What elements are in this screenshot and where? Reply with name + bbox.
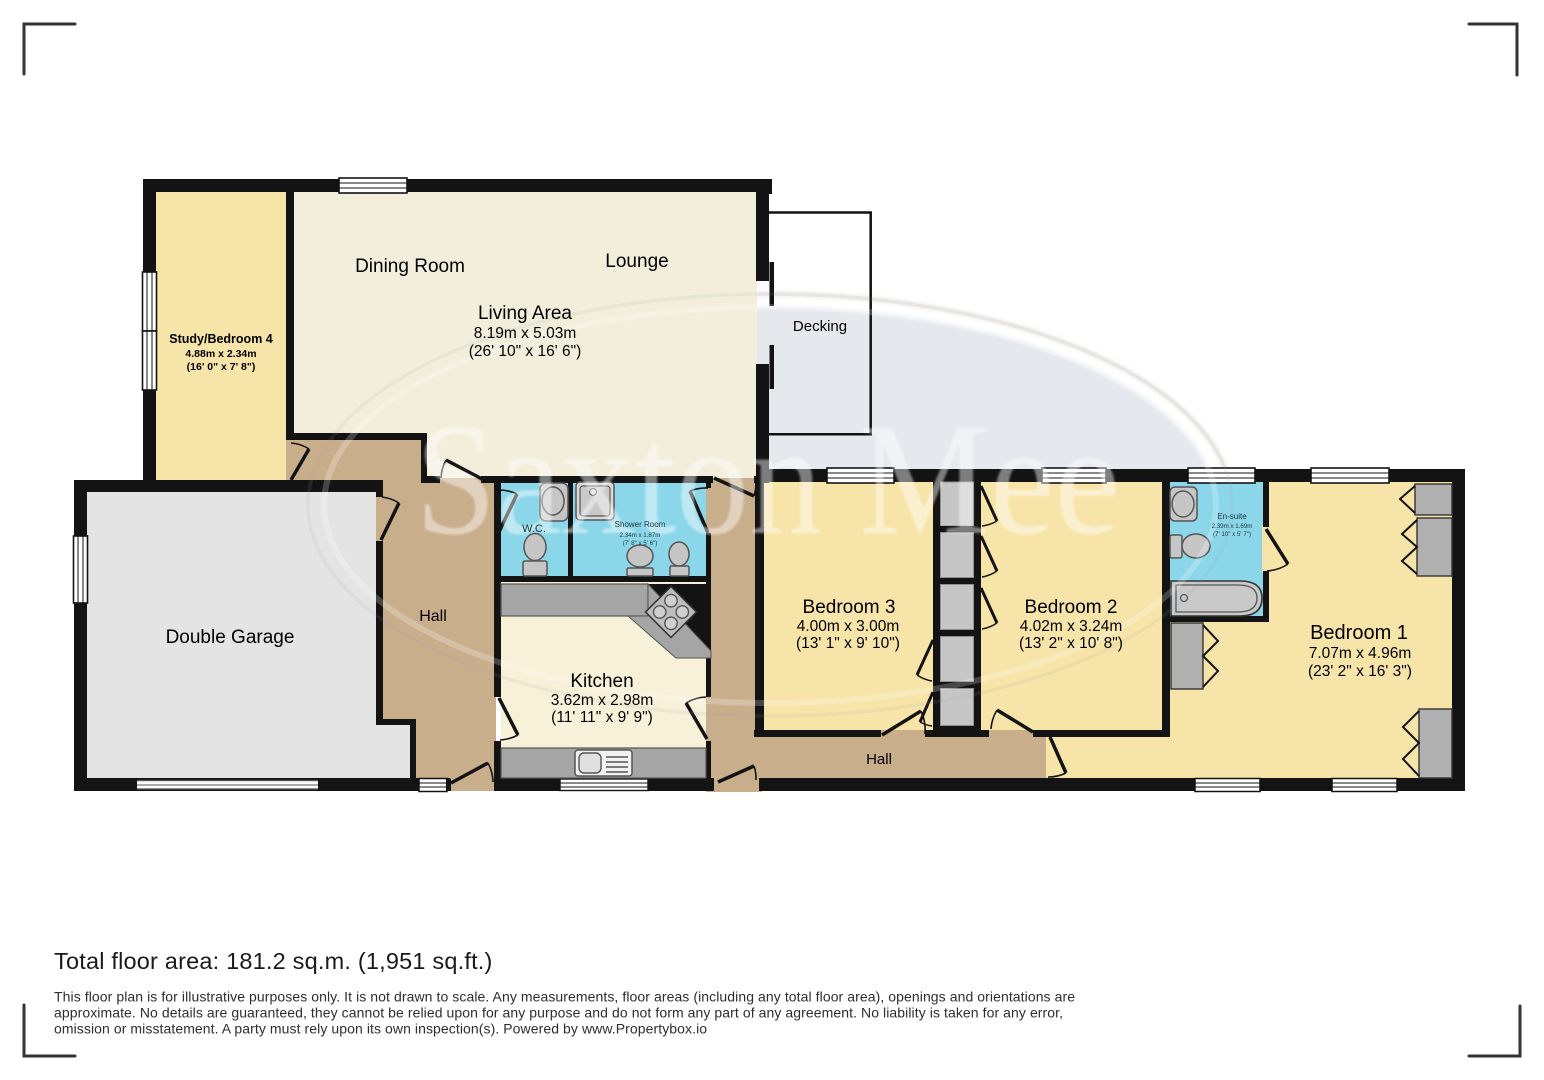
svg-text:Hall: Hall: [866, 751, 892, 768]
svg-text:(11' 11" x 9' 9"): (11' 11" x 9' 9"): [551, 709, 653, 726]
svg-text:Study/Bedroom 4: Study/Bedroom 4: [169, 332, 273, 346]
svg-text:2.39m x 1.69m: 2.39m x 1.69m: [1212, 523, 1253, 530]
svg-text:(26' 10" x 16' 6"): (26' 10" x 16' 6"): [469, 343, 582, 360]
svg-text:(13' 1" x 9' 10"): (13' 1" x 9' 10"): [796, 635, 900, 652]
svg-text:omission or misstatement. A pa: omission or misstatement. A party must r…: [54, 1021, 707, 1037]
svg-text:4.00m x 3.00m: 4.00m x 3.00m: [797, 618, 900, 635]
svg-text:3.62m x 2.98m: 3.62m x 2.98m: [551, 692, 654, 709]
svg-text:Bedroom 1: Bedroom 1: [1310, 622, 1408, 644]
svg-text:4.02m x 3.24m: 4.02m x 3.24m: [1020, 618, 1123, 635]
svg-text:(7' 10" x 5' 7"): (7' 10" x 5' 7"): [1213, 531, 1251, 538]
svg-text:Total floor area: 181.2 sq.m.: Total floor area: 181.2 sq.m. (1,951 sq.…: [54, 948, 493, 974]
svg-text:Double Garage: Double Garage: [166, 627, 295, 648]
svg-text:(13' 2" x 10' 8"): (13' 2" x 10' 8"): [1019, 635, 1123, 652]
svg-text:approximate. No details are gu: approximate. No details are guaranteed, …: [54, 1005, 1063, 1021]
svg-text:Shower Room: Shower Room: [615, 520, 666, 529]
svg-text:Hall: Hall: [419, 608, 447, 625]
svg-text:Decking: Decking: [793, 318, 847, 335]
svg-text:2.34m x 1.87m: 2.34m x 1.87m: [620, 532, 661, 539]
svg-text:Bedroom 3: Bedroom 3: [803, 597, 896, 618]
svg-text:Living Area: Living Area: [478, 303, 572, 324]
svg-text:Lounge: Lounge: [605, 251, 668, 272]
svg-text:8.19m x 5.03m: 8.19m x 5.03m: [474, 325, 577, 342]
svg-text:W.C.: W.C.: [522, 523, 546, 535]
svg-text:Dining Room: Dining Room: [355, 256, 465, 277]
svg-text:This floor plan is for illustr: This floor plan is for illustrative purp…: [54, 989, 1075, 1005]
svg-text:(23' 2" x 16' 3"): (23' 2" x 16' 3"): [1308, 663, 1412, 680]
svg-text:En-suite: En-suite: [1217, 512, 1247, 521]
svg-text:4.88m x 2.34m: 4.88m x 2.34m: [185, 348, 256, 360]
svg-text:7.07m x 4.96m: 7.07m x 4.96m: [1309, 645, 1412, 662]
svg-text:Saxton Mee: Saxton Mee: [415, 390, 1120, 568]
svg-text:Bedroom 2: Bedroom 2: [1025, 597, 1118, 618]
svg-text:(7' 8" x 5' 6"): (7' 8" x 5' 6"): [623, 540, 658, 547]
svg-text:Kitchen: Kitchen: [570, 671, 633, 692]
svg-text:(16' 0" x 7' 8"): (16' 0" x 7' 8"): [187, 361, 256, 373]
